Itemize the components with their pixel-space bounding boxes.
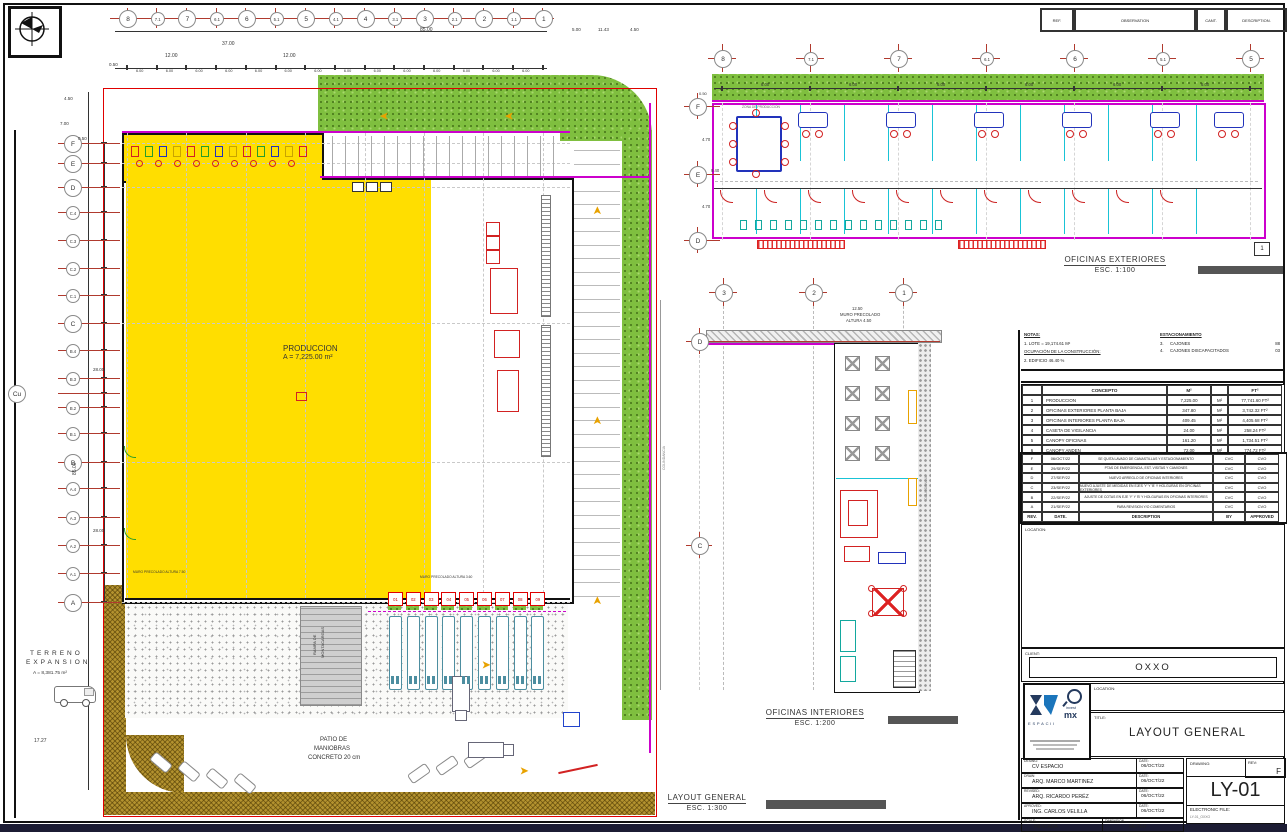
line [836,478,918,479]
table-cell: OFICINAS EXTERIORES PLANTA BAJA [1042,405,1167,415]
table-cell [1022,385,1042,395]
exterior-title-text: OFICINAS EXTERIORES [1064,255,1165,266]
line [371,136,372,176]
trailer-wheels [432,676,435,684]
rack-column [541,195,551,317]
line [574,164,620,165]
annotation-label: ALTURA 4.50 [846,318,871,323]
trailer-wheels [462,676,465,684]
chair-icon [752,170,760,178]
efile-label: ELECTRONIC FILE: [1190,807,1230,812]
toilet-fixture [890,220,897,230]
annotation-label: 12.00 [165,53,178,59]
line [574,528,620,529]
grid-bubble: C [691,537,709,555]
table-cell: CASETA DE VIGILANCIA [1042,425,1167,435]
grid-bubble: F [689,98,707,116]
annotation-label: PATIO DE [320,737,347,743]
toilet-fixture [935,220,942,230]
annotation-label: 12.00 [283,53,296,59]
client-box: CLIENT: OXXO [1021,648,1285,682]
sig-date-cell: DATE:06/OCT/22 [1136,789,1183,802]
grid-bubble: 7.1 [151,12,165,26]
table-cell: 21/SEP/22 [1042,502,1079,512]
office-chair [174,160,181,167]
line [358,136,359,176]
toilet-fixture [875,220,882,230]
annotation-label: COLINDANCIA [924,476,928,500]
grid-bubble: 4.1 [329,12,343,26]
client-label: CLIENT: [1025,651,1284,656]
dock-landscape [388,606,401,610]
truck-cab [455,710,467,721]
guard-house [563,712,580,727]
signature-rows: DESING:CV ESPACIODATE:06/OCT/22DRAW:ARQ.… [1021,758,1184,822]
annotation-label: 6.00 [937,82,945,87]
parking-title: ESTACIONAMIENTO [1160,332,1280,337]
annotation-label: 6.00 [492,69,499,73]
line [574,204,620,205]
office-furniture [145,146,153,157]
dock-landscape [459,606,472,610]
sig-date-cell: DATE:06/OCT/22 [1136,759,1183,772]
signature-row: REVISED:ARQ. RICARDO PERÉZDATE:06/OCT/22 [1021,788,1184,803]
sig-cell: REVISED:ARQ. RICARDO PERÉZ [1022,789,1136,802]
line [574,272,620,273]
line [574,582,620,583]
grid-bubble: D [691,333,709,351]
line [574,501,620,502]
annotation-label: 85.00 [420,27,433,33]
grid-bubble: C [64,315,82,333]
table-cell: 1 [1022,395,1042,405]
dock-door: 02 [406,592,421,606]
notes-block: NOTAS: 1. LOTE = 19,174.61 M² OCUPACIÓN … [1024,332,1156,363]
layout-plan-title: LAYOUT GENERAL ESC. 1:300 [652,793,762,812]
trailer-wheels [480,676,483,684]
line [115,31,547,32]
chair-icon [978,130,986,138]
sheet-inner-margin [14,130,16,818]
annotation-label: 6.00 [1113,82,1121,87]
table-cell: B [1022,492,1042,502]
line [714,88,1262,89]
restroom-fixture [840,620,856,652]
parking-block: ESTACIONAMIENTO 3. CAJONES 88 4. CAJONES… [1160,332,1280,353]
line [393,65,395,70]
table-cell: C [1022,483,1042,493]
grid-dash-line [722,103,723,240]
grid-dash-line [186,133,187,598]
sig-date-cell: DATE:06/OCT/22 [1136,774,1183,787]
grid-bubble: 6.1 [980,52,994,66]
grid-bubble: D [64,179,82,197]
line [58,393,120,394]
annotation-label: 4.50 [630,27,639,32]
grid-bubble: D [689,232,707,250]
grid-bubble: 5.1 [1156,52,1170,66]
table-cell: 06/OCT/22 [1042,454,1079,464]
table-cell: NUEVO ARREGLO DE OFICINAS INTERIORES [1079,473,1213,483]
marker-text: 1 [1260,246,1263,252]
dock-landscape [495,606,508,610]
grid-bubble: 8 [714,50,732,68]
annotation-label: 17.27 [34,738,47,744]
dock-landscape [424,606,437,610]
line [706,343,834,345]
grid-bubble: A [64,594,82,612]
table-cell: CVO [1245,483,1279,493]
logo-address-line [1036,748,1074,750]
chair-icon [991,130,999,138]
chair-icon [752,109,760,117]
parking-row-qty: 88 [1275,341,1280,346]
interior-scale-bar [888,716,958,724]
description-label: DESCRIPTION. [1242,18,1270,23]
title-label: TITLE: [1094,715,1284,720]
annotation-label: MURO PRECOLADO [840,312,880,317]
cafeteria-table [845,416,860,431]
line [449,136,450,176]
line [410,136,411,176]
parking-row-label: CAJONES [1170,341,1275,346]
annotation-label: EXPANSION [26,659,90,666]
trailer-wheels [533,676,536,684]
chair-icon [1154,130,1162,138]
small-room [352,182,364,192]
line [436,136,437,176]
drawing-title: LAYOUT GENERAL [1091,727,1284,739]
drawing-sheet: REF. OBSERVATION CANT. DESCRIPTION. OFIC… [0,0,1287,832]
annotation-label: 6.00 [1201,82,1209,87]
line [453,65,455,70]
location-label: LOCATION: [1025,527,1284,532]
annotation-label: 6.00 [195,69,202,73]
annotation-label: 5.00 [572,27,581,32]
line [1196,105,1197,161]
table-cell: AJUSTE DE COTAS EN EJE 'Y' Y 'B' Y HOLGU… [1079,492,1213,502]
cafeteria-table [845,386,860,401]
line [514,136,515,176]
table-cell: SE QUITA LAVADO DE CANASTILLAS Y ESTACIO… [1079,454,1213,464]
forklift-ramp [300,606,362,706]
ref-header-observation: OBSERVATION [1074,8,1196,32]
scale-cell: SCALE:INDICADA [1022,819,1102,831]
line [710,240,720,241]
table-cell: APPROVED [1245,512,1279,522]
grid-bubble: 5.1 [270,12,284,26]
notes-divider-bottom [1021,381,1283,383]
annotation-label: 6.00 [522,69,529,73]
direction-arrow-icon: ➤ [505,110,513,121]
grid-bubble: C.1 [66,289,80,303]
line [88,700,89,790]
chair-icon [781,158,789,166]
toilet-fixture [800,220,807,230]
grid-bubble: A.4 [66,482,80,496]
chair-icon [890,130,898,138]
drawing-number-block: DRAWING: REV: F LY-01 ELECTRONIC FILE: L… [1186,758,1285,824]
notes-line3: 2. EDIFICIO 46.40 % [1024,358,1156,363]
line [574,191,620,192]
table-cell: E [1022,464,1042,474]
desk [1214,112,1244,128]
cafeteria-table [845,356,860,371]
van-window [84,688,94,696]
annotation-label: MONTACARGAS [320,627,325,658]
annotation-label: CONCRETO 20 cm [308,755,360,761]
toilet-fixture [785,220,792,230]
line [574,366,620,367]
cafeteria-table [875,356,890,371]
dock-door: 07 [495,592,510,606]
line [1108,105,1109,161]
table-cell: CVO [1245,492,1279,502]
boundary-stone-wall [918,343,931,691]
grid-bubble: 1 [895,284,913,302]
dock-door: 08 [513,592,528,606]
line [574,542,620,543]
grid-bubble: B.2 [66,401,80,415]
layout-scale-bar [766,800,886,809]
trailer-wheels [485,676,488,684]
grid-bubble: 6.1 [210,12,224,26]
grid-bubble: C.3 [66,234,80,248]
grid-bubble: 3 [715,284,733,302]
office-chair [250,160,257,167]
table-cell: DATE. [1042,512,1079,522]
table-cell: CVC [1213,454,1245,464]
grid-bubble: C.4 [66,206,80,220]
rev-value: F [1276,767,1281,776]
office-furniture [257,146,265,157]
line [512,65,514,70]
toilet-fixture [830,220,837,230]
table-cell: REV. [1022,512,1042,522]
office-furniture [285,146,293,157]
annotation-label: MANIOBRAS [314,746,350,752]
chair-icon [1218,130,1226,138]
table-cell: OFICINAS INTERIORES PLANTA BAJA [1042,415,1167,425]
table-cell: CVO [1245,502,1279,512]
layout-title-text: LAYOUT GENERAL [668,793,747,804]
line [932,105,933,161]
table-cell: D [1022,473,1042,483]
line [527,136,528,176]
chair-icon [729,140,737,148]
table-cell: 409.45 [1167,415,1211,425]
annotation-label: MURO PRECOLADO ALTURA 7.50 [133,570,185,574]
sig-cell: DRAW:ARQ. MARCO MARTINEZ [1022,774,1136,787]
parking-row-label: CAJONES DISCAPACITADOS [1170,348,1275,353]
logo-box: ESPACII invest mx [1023,683,1091,760]
title-box: TITLE: LAYOUT GENERAL [1090,712,1285,757]
line [809,86,811,91]
annotation-label: 7.00 [60,121,69,126]
trailer-wheels [391,676,394,684]
office-chair [212,160,219,167]
drawing-label: DRAWING: [1190,761,1210,766]
parking-row-num: 4. [1160,348,1170,353]
line [1020,189,1021,234]
table-cell: CVC [1213,492,1245,502]
locker-column [908,478,917,506]
production-zone [126,180,431,598]
trailer-wheels [449,676,452,684]
office-wing-outline [122,133,324,183]
table-cell: M² [1211,405,1228,415]
line [126,65,128,70]
rev-label: REV: [1248,760,1257,765]
line [245,65,247,70]
line [574,299,620,300]
annotation-label: 6.00 [225,69,232,73]
line [1249,86,1251,91]
annotation-label: COLINDANCIA [662,446,666,470]
annotation-label: A = 8,381.75 m² [33,671,67,676]
table-cell: 347.80 [1167,405,1211,415]
annotation-label: ZONA DE PRODUCCION [742,105,780,109]
trailer-wheels [444,676,447,684]
grid-bubble: Cu [8,385,26,403]
invest-mx-logo: invest mx [1063,689,1087,729]
table-cell: A [1022,502,1042,512]
line [397,136,398,176]
table-cell: 29/SEP/22 [1042,464,1079,474]
restroom-fixture [840,656,856,682]
line [423,136,424,176]
annotation-label: 6.00 [403,69,410,73]
line [574,218,620,219]
observation-label: OBSERVATION [1121,18,1149,23]
annotation-label: 12.50 [852,306,862,311]
office-furniture [159,146,167,157]
layout-scale-text: ESC. 1:300 [652,805,762,812]
cafeteria-table [875,416,890,431]
parking-row-num: 3. [1160,341,1170,346]
efile-row: ELECTRONIC FILE: LY-01_OXXO [1187,805,1284,823]
stairs [893,650,916,688]
scale-row: SCALE:INDICADADIMENSIONMETER [1021,818,1184,832]
desk [886,112,916,128]
table-cell: 3,742.32 FT² [1228,405,1282,415]
grid-dash-line [1250,103,1251,240]
chair-icon [1231,130,1239,138]
trailer-wheels [538,676,541,684]
line [844,105,845,161]
line [574,569,620,570]
table-cell: 1,734.51 FT² [1228,435,1282,445]
direction-arrow-icon: ➤ [482,660,490,671]
trailer-wheels [498,676,501,684]
toilet-fixture [755,220,762,230]
van-wheel [60,699,68,707]
ref-header-ref: REF. [1040,8,1074,32]
annotation-label: 6.00 [344,69,351,73]
annotation-label: 6.00 [374,69,381,73]
table-cell: 23/SEP/22 [1042,483,1079,493]
grid-dash-line [122,143,570,144]
office-furniture [215,146,223,157]
annotation-label: 6.00 [1025,82,1033,87]
chair-icon [868,585,875,592]
table-cell: 4,405.68 FT² [1228,415,1282,425]
line [649,103,651,753]
table-cell: CVO [1245,464,1279,474]
annotation-label: 6.00 [314,69,321,73]
desk [844,546,870,562]
table-cell: 5 [1022,435,1042,445]
line [976,189,977,234]
espacii-text: ESPACII [1028,721,1056,726]
drawing-row: DRAWING: REV: F [1187,759,1284,777]
table-cell: PTAS DE EMERGENCIA, EST. VISITAS Y CAMIO… [1079,464,1213,474]
grid-bubble: 8 [119,10,137,28]
parking-row-qty: 03 [1275,348,1280,353]
grid-dash-line [122,462,570,463]
rack-column [541,325,551,457]
table-cell: CVO [1245,454,1279,464]
line [574,474,620,475]
dock-landscape [530,606,543,610]
line [1196,189,1197,234]
desk [1150,112,1180,128]
trailer-wheels [414,676,417,684]
chair-icon [903,130,911,138]
efile-value: LY-01_OXXO [1190,815,1210,819]
annotation-label: TERRENO [30,650,83,657]
chair-icon [815,130,823,138]
line [1108,189,1109,234]
grid-dash-line [813,306,814,690]
line [574,393,620,394]
line [332,136,333,176]
direction-arrow-icon: ➤ [593,416,604,424]
line [275,65,277,70]
chair-icon [729,158,737,166]
cv-espacii-logo [1028,691,1062,719]
line [712,341,940,342]
office-chair [269,160,276,167]
dock-door: 01 [388,592,403,606]
table-cell [1211,385,1228,395]
dock-door: 04 [441,592,456,606]
toilet-fixture [845,220,852,230]
north-arrow-icon [11,9,53,49]
chair-icon [781,122,789,130]
annotation-label: MURO PRECOLADO ALTURA 3.60 [420,575,472,579]
grid-bubble: B.1 [66,427,80,441]
annotation-label: 0.50 [109,62,118,67]
line [482,65,484,70]
sig-cell: APROVED:ING. CARLOS VELILLA [1022,804,1136,817]
chair-icon [1167,130,1175,138]
desk [974,112,1004,128]
grid-bubble: E [689,166,707,184]
notes-title: NOTAS: [1024,332,1156,337]
table-cell: NUEVO AJUSTE DE MEDIDAS EN EJES 'Y' Y 'B… [1079,483,1213,493]
line [156,65,158,70]
exterior-scale-text: ESC. 1:100 [1035,267,1195,274]
line [320,176,650,178]
line [345,136,346,176]
exterior-plan-title: OFICINAS EXTERIORES ESC. 1:100 [1035,255,1195,274]
direction-arrow-icon: ➤ [593,596,604,604]
equipment-block [486,250,500,264]
annotation-label: A = 7,225.00 m² [283,354,333,361]
drawing-number: LY-01 [1187,776,1284,806]
table-cell: DESCRIPTION [1079,512,1213,522]
